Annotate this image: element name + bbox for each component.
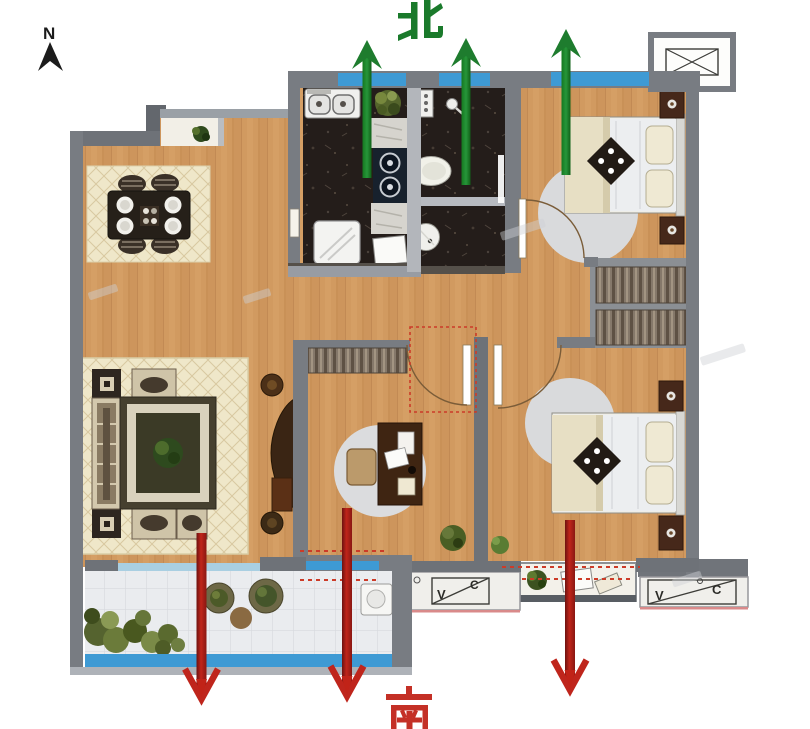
svg-text:C: C	[470, 578, 479, 592]
svg-text:C: C	[712, 582, 722, 597]
svg-text:V: V	[437, 587, 446, 602]
svg-text:N: N	[43, 24, 55, 43]
svg-text:V: V	[655, 588, 664, 603]
